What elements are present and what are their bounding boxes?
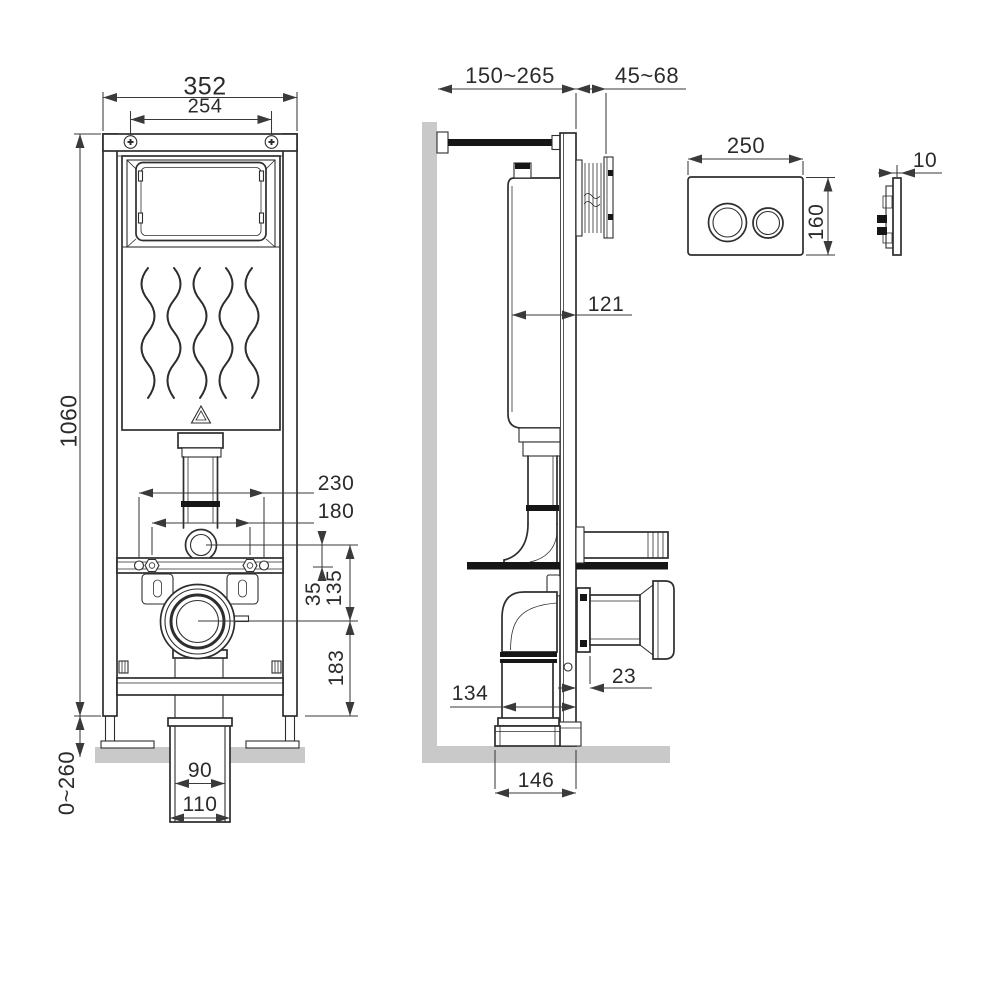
left-foot-tube — [106, 716, 115, 742]
dim-cistern-depth: 121 — [588, 293, 625, 317]
pipe-coupling — [181, 501, 220, 507]
right-foot-plate — [246, 741, 299, 748]
wall-anchor — [437, 132, 448, 153]
outlet-bell — [653, 581, 674, 659]
dim-plate-thickness: 10 — [913, 149, 937, 173]
dim-plate-width: 250 — [727, 133, 765, 159]
dim-frame-depth-range: 150~265 — [465, 63, 555, 89]
pan-bracket-right — [227, 574, 258, 604]
fixing-hole-left — [135, 561, 144, 570]
dim-base-depth: 146 — [518, 769, 555, 793]
left-foot-plate — [101, 741, 154, 748]
frame-profile — [560, 133, 576, 746]
dim-outlet-flange-offset: 23 — [612, 665, 636, 689]
dim-inlet-to-outlet: 135 — [323, 570, 347, 607]
flush-connector — [583, 532, 668, 558]
pan-level-bar-left — [467, 562, 560, 570]
flush-plate-bellows — [576, 157, 613, 238]
drawing-canvas — [0, 0, 1000, 1000]
right-foot-tube — [286, 716, 295, 742]
flush-plate-side-drawing — [877, 165, 942, 255]
outlet-connector — [590, 595, 640, 645]
threaded-rod — [448, 139, 552, 146]
dim-top-bolt-spacing: 254 — [188, 96, 223, 119]
cistern-profile — [508, 178, 560, 428]
flush-plate-side-profile — [893, 178, 901, 255]
dim-outlet-to-floor: 183 — [325, 650, 349, 687]
pan-level-bar-right — [576, 562, 668, 570]
bottom-rail — [117, 678, 283, 695]
flush-valve-collar — [178, 433, 223, 448]
floor-band-side — [422, 746, 670, 763]
hex-nut-left — [145, 560, 159, 572]
drain-socket — [495, 726, 560, 746]
dim-drain-inner-dia: 90 — [188, 759, 212, 783]
dim-frame-height: 1060 — [56, 394, 83, 447]
flush-elbow — [504, 524, 528, 563]
hex-nut-right — [243, 560, 257, 572]
dim-plate-height: 160 — [805, 204, 829, 241]
wall-band — [422, 122, 437, 747]
dim-fixing-spacing-inner: 180 — [318, 500, 355, 524]
dim-finish-depth-range: 45~68 — [615, 63, 679, 89]
right-upright — [283, 134, 297, 716]
dim-drain-outer-dia: 110 — [183, 793, 218, 817]
drain-pipe-collar — [168, 718, 232, 726]
dim-leg-adjust-range: 0~260 — [54, 751, 80, 815]
front-view-drawing — [74, 92, 358, 822]
technical-drawing: 352 254 1060 0~260 230 180 35 135 183 90… — [0, 0, 1000, 1000]
dim-fixing-spacing-outer: 230 — [318, 472, 355, 496]
dim-drain-center-offset: 134 — [452, 682, 489, 706]
left-upright — [103, 134, 117, 716]
drain-elbow — [502, 592, 557, 652]
fixing-hole-right — [260, 561, 269, 570]
